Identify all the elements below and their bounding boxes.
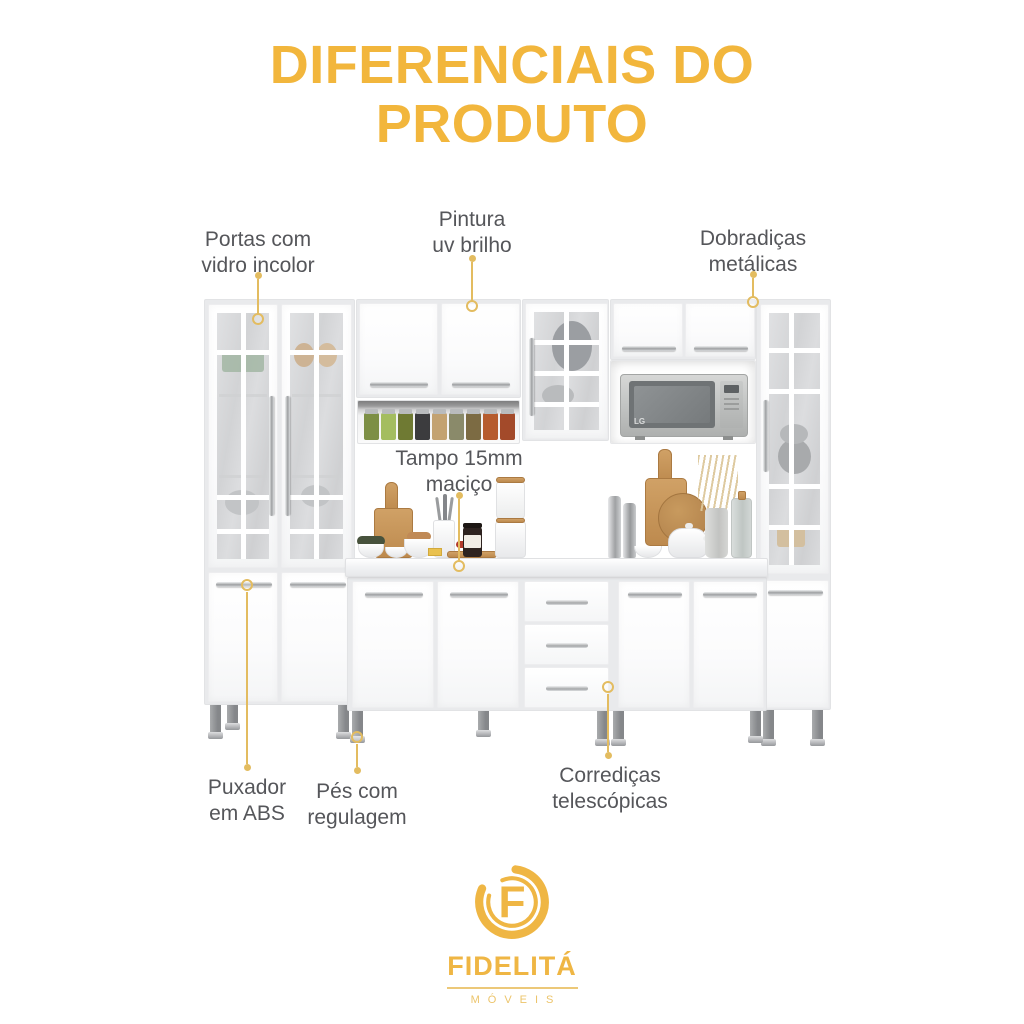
brand-logo-mark: F <box>471 861 553 943</box>
callout-portas-ring <box>252 313 264 325</box>
page-title-line2: PRODUTO <box>376 94 649 154</box>
callout-pes-line <box>356 744 358 767</box>
page-title-line1: DIFERENCIAIS DO <box>270 35 755 95</box>
glass-pane <box>769 313 820 565</box>
right-tower <box>756 299 831 710</box>
spice-jar <box>500 413 515 440</box>
callout-pintura-line <box>471 262 473 301</box>
door-handle <box>290 582 346 587</box>
cabinet-door <box>618 581 690 708</box>
cabinet-door <box>359 303 438 395</box>
door-handle <box>285 396 290 516</box>
upper-cabinet-left <box>356 299 521 398</box>
door-handle <box>768 590 823 595</box>
door-handle <box>269 396 274 516</box>
drawer <box>524 667 609 708</box>
spice-jar <box>415 413 430 440</box>
spice-jar <box>449 413 464 440</box>
brand-tagline: MÓVEIS <box>0 994 1024 1006</box>
brand-monogram: F <box>498 879 525 928</box>
cabinet-door <box>693 581 764 708</box>
callout-portas-label: Portas com vidro incolor <box>163 227 353 279</box>
teapot <box>668 528 708 558</box>
callout-puxador-dot <box>244 764 251 771</box>
callout-portas-line <box>257 279 259 314</box>
door-handle <box>529 338 534 416</box>
adjustable-foot <box>763 710 774 740</box>
door-handle <box>365 592 423 597</box>
base-cabinet <box>347 577 767 711</box>
callout-tampo-ring <box>453 560 465 572</box>
cabinet-door <box>685 303 755 357</box>
left-tower <box>204 299 355 705</box>
callout-dobradicas-ring <box>747 296 759 308</box>
open-spice-shelf <box>357 400 520 444</box>
countertop <box>345 558 768 577</box>
callout-pes-label: Pés com regulagem <box>262 779 452 831</box>
callout-tampo-line <box>458 499 460 560</box>
spread-jar <box>463 527 482 557</box>
drawer <box>524 581 609 622</box>
door-handle <box>452 382 510 387</box>
drawer <box>524 624 609 665</box>
door-handle <box>628 592 682 597</box>
callout-puxador-line <box>246 592 248 764</box>
microwave: LG <box>620 374 748 437</box>
glass-pane <box>217 313 269 559</box>
door-handle <box>450 592 508 597</box>
bowls-decor <box>778 439 811 474</box>
adjustable-foot <box>750 711 761 737</box>
brand-name: FIDELITÁ <box>0 951 1024 982</box>
callout-puxador-ring <box>241 579 253 591</box>
door-handle <box>622 346 676 351</box>
cabinet-door <box>441 303 520 395</box>
door-handle <box>370 382 428 387</box>
glass-door <box>760 304 829 574</box>
adjustable-foot <box>812 710 823 740</box>
spice-jar <box>432 413 447 440</box>
adjustable-foot <box>613 711 624 740</box>
adjustable-foot <box>227 705 238 724</box>
callout-pes-ring <box>351 731 363 743</box>
microwave-door: LG <box>629 381 715 428</box>
callout-pintura-label: Pintura uv brilho <box>377 207 567 259</box>
microwave-niche: LG <box>610 360 756 444</box>
spice-jar <box>381 413 396 440</box>
callout-pintura-ring <box>466 300 478 312</box>
glass-pane <box>534 312 599 430</box>
spice-jar <box>483 413 498 440</box>
page-title: DIFERENCIAIS DO PRODUTO <box>0 36 1024 154</box>
callout-corredicas-label: Corrediças telescópicas <box>515 763 705 815</box>
drawer-handle <box>546 643 588 648</box>
infographic-page: DIFERENCIAIS DO PRODUTO <box>0 0 1024 1024</box>
glass-door <box>281 304 352 568</box>
whisk <box>443 494 447 523</box>
cabinet-door <box>208 572 278 702</box>
adjustable-foot <box>478 711 489 731</box>
callout-dobradicas-line <box>752 278 754 297</box>
brand-divider <box>447 987 578 989</box>
callout-tampo-label: Tampo 15mm maciço <box>364 446 554 498</box>
microwave-control-panel <box>720 381 743 428</box>
drawer-handle <box>546 600 588 605</box>
cabinet-door <box>281 572 352 702</box>
glass-bottle <box>731 498 752 558</box>
upper-cabinet-right <box>610 299 756 360</box>
butter-block <box>428 548 442 556</box>
bowl-decor <box>552 321 592 371</box>
vase <box>705 508 728 558</box>
glass-door <box>208 304 278 568</box>
glass-door <box>525 303 608 439</box>
glass-pane <box>290 313 343 559</box>
callout-pes-dot <box>354 767 361 774</box>
cabinet-door <box>437 581 519 708</box>
spice-jar <box>364 413 379 440</box>
callout-corredicas-dot <box>605 752 612 759</box>
bowl <box>634 546 662 558</box>
callout-dobradicas-label: Dobradiças metálicas <box>658 226 848 278</box>
door-handle <box>694 346 748 351</box>
door-handle <box>763 400 768 472</box>
center-glass-cabinet <box>522 299 609 441</box>
microwave-brand: LG <box>634 417 645 426</box>
door-handle <box>703 592 757 597</box>
shaker <box>608 496 621 558</box>
spice-jar <box>398 413 413 440</box>
cabinet-door <box>760 580 829 708</box>
callout-corredicas-ring <box>602 681 614 693</box>
canister <box>495 521 526 558</box>
adjustable-foot <box>210 705 221 733</box>
cabinet-door <box>352 581 434 708</box>
cabinet-door <box>613 303 683 357</box>
callout-corredicas-line <box>607 694 609 752</box>
drawer-handle <box>546 686 588 691</box>
spice-jar <box>466 413 481 440</box>
